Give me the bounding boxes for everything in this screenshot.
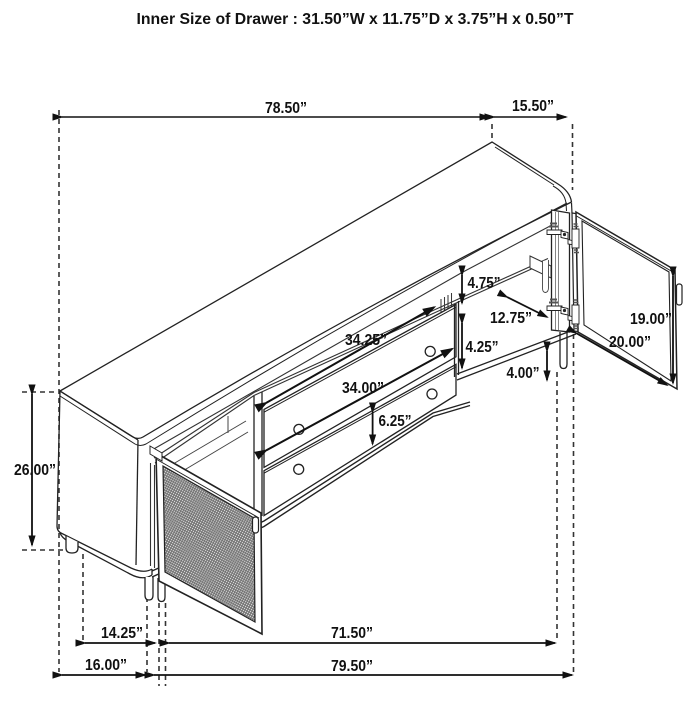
svg-text:14.25”: 14.25” [101,625,143,642]
svg-text:26.00”: 26.00” [14,462,56,479]
svg-text:71.50”: 71.50” [331,625,373,642]
svg-text:19.00”: 19.00” [630,311,672,328]
svg-text:16.00”: 16.00” [85,657,127,674]
svg-text:78.50”: 78.50” [265,100,307,117]
svg-text:20.00”: 20.00” [609,334,651,351]
svg-text:4.75”: 4.75” [468,275,501,292]
svg-text:15.50”: 15.50” [512,98,554,115]
svg-text:6.25”: 6.25” [379,413,412,430]
svg-text:12.75”: 12.75” [490,310,532,327]
svg-text:79.50”: 79.50” [331,658,373,675]
svg-text:Inner Size of Drawer : 31.50”W: Inner Size of Drawer : 31.50”W x 11.75”D… [137,11,575,28]
svg-text:34.00”: 34.00” [342,380,384,397]
svg-text:4.00”: 4.00” [507,365,540,382]
svg-text:34.25”: 34.25” [345,332,387,349]
svg-text:4.25”: 4.25” [466,339,499,356]
